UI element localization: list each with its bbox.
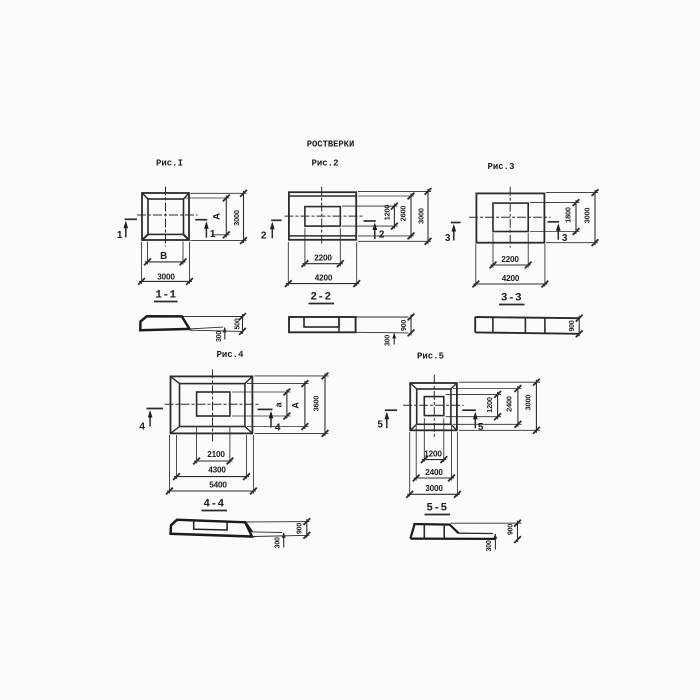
svg-text:1-1: 1-1: [155, 290, 176, 302]
svg-text:2200: 2200: [501, 255, 519, 264]
svg-text:500: 500: [234, 318, 241, 329]
svg-text:3600: 3600: [312, 396, 321, 412]
svg-text:4: 4: [275, 423, 281, 434]
svg-text:5-5: 5-5: [426, 503, 447, 515]
svg-text:Рис.3: Рис.3: [487, 162, 514, 172]
svg-text:4300: 4300: [208, 466, 226, 475]
svg-text:300: 300: [216, 331, 223, 342]
svg-text:Рис.4: Рис.4: [216, 350, 244, 360]
svg-text:900: 900: [401, 320, 408, 331]
svg-text:3000: 3000: [416, 208, 425, 224]
svg-text:3000: 3000: [425, 484, 443, 493]
svg-text:Рис.2: Рис.2: [311, 159, 338, 169]
svg-text:А: А: [291, 402, 301, 409]
svg-text:5: 5: [377, 420, 383, 431]
svg-text:2: 2: [379, 230, 385, 241]
svg-text:2-2: 2-2: [310, 292, 331, 304]
svg-text:2100: 2100: [207, 450, 225, 459]
svg-text:3: 3: [562, 233, 568, 244]
svg-text:2: 2: [261, 231, 267, 242]
svg-text:2600: 2600: [398, 206, 407, 222]
svg-text:300: 300: [486, 540, 493, 551]
svg-text:А: А: [212, 213, 223, 220]
svg-text:4200: 4200: [502, 274, 520, 283]
svg-text:В: В: [160, 251, 167, 262]
svg-text:5400: 5400: [209, 481, 227, 490]
svg-text:3: 3: [445, 233, 451, 244]
svg-text:1200: 1200: [382, 205, 391, 221]
svg-text:3-3: 3-3: [501, 293, 522, 305]
svg-text:900: 900: [507, 524, 514, 535]
svg-text:1: 1: [210, 229, 216, 240]
svg-text:Рис.5: Рис.5: [417, 352, 444, 362]
svg-text:3000: 3000: [523, 395, 532, 411]
svg-text:900: 900: [569, 320, 576, 331]
svg-text:3000: 3000: [582, 208, 591, 224]
svg-text:1200: 1200: [424, 450, 442, 459]
svg-text:4-4: 4-4: [203, 499, 224, 511]
svg-text:4200: 4200: [315, 274, 333, 283]
svg-text:5: 5: [478, 422, 484, 433]
svg-text:Рис.I: Рис.I: [156, 159, 183, 169]
svg-text:3000: 3000: [157, 273, 175, 282]
svg-text:1: 1: [117, 230, 123, 241]
svg-text:2200: 2200: [314, 254, 332, 263]
svg-text:РОСТВЕРКИ: РОСТВЕРКИ: [307, 140, 355, 150]
svg-text:3000: 3000: [232, 210, 241, 226]
svg-text:1200: 1200: [485, 397, 494, 413]
svg-text:900: 900: [296, 523, 303, 534]
svg-text:2400: 2400: [504, 396, 513, 412]
svg-text:2400: 2400: [425, 468, 443, 477]
svg-text:1800: 1800: [563, 207, 572, 223]
svg-text:300: 300: [275, 537, 282, 548]
svg-text:4: 4: [139, 422, 145, 433]
svg-text:300: 300: [385, 335, 392, 346]
